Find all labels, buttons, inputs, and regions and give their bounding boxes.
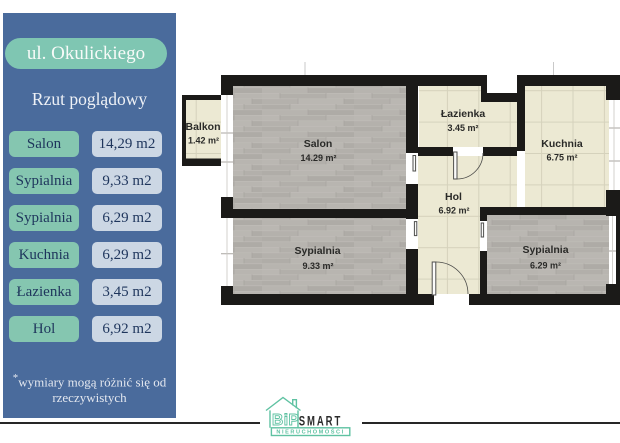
svg-text:14.29 m²: 14.29 m²: [300, 153, 336, 163]
svg-text:NIERUCHOMOŚCI: NIERUCHOMOŚCI: [276, 429, 344, 436]
svg-text:1.42 m²: 1.42 m²: [188, 136, 219, 146]
svg-text:6.75 m²: 6.75 m²: [546, 153, 577, 163]
svg-text:Sypialnia: Sypialnia: [295, 245, 341, 257]
svg-text:3.45 m²: 3.45 m²: [447, 123, 478, 133]
svg-text:6.29 m²: 6.29 m²: [530, 260, 561, 270]
svg-text:Kuchnia: Kuchnia: [541, 138, 583, 150]
svg-text:6.92 m²: 6.92 m²: [438, 206, 469, 216]
svg-text:Sypialnia: Sypialnia: [522, 244, 568, 256]
svg-text:9.33 m²: 9.33 m²: [302, 261, 333, 271]
svg-text:Balkon: Balkon: [185, 121, 220, 133]
svg-text:SMART: SMART: [299, 412, 342, 428]
svg-text:Łazienka: Łazienka: [441, 108, 486, 120]
svg-text:Hol: Hol: [445, 191, 462, 203]
svg-text:BiP: BiP: [272, 412, 299, 429]
svg-text:Salon: Salon: [304, 138, 333, 150]
